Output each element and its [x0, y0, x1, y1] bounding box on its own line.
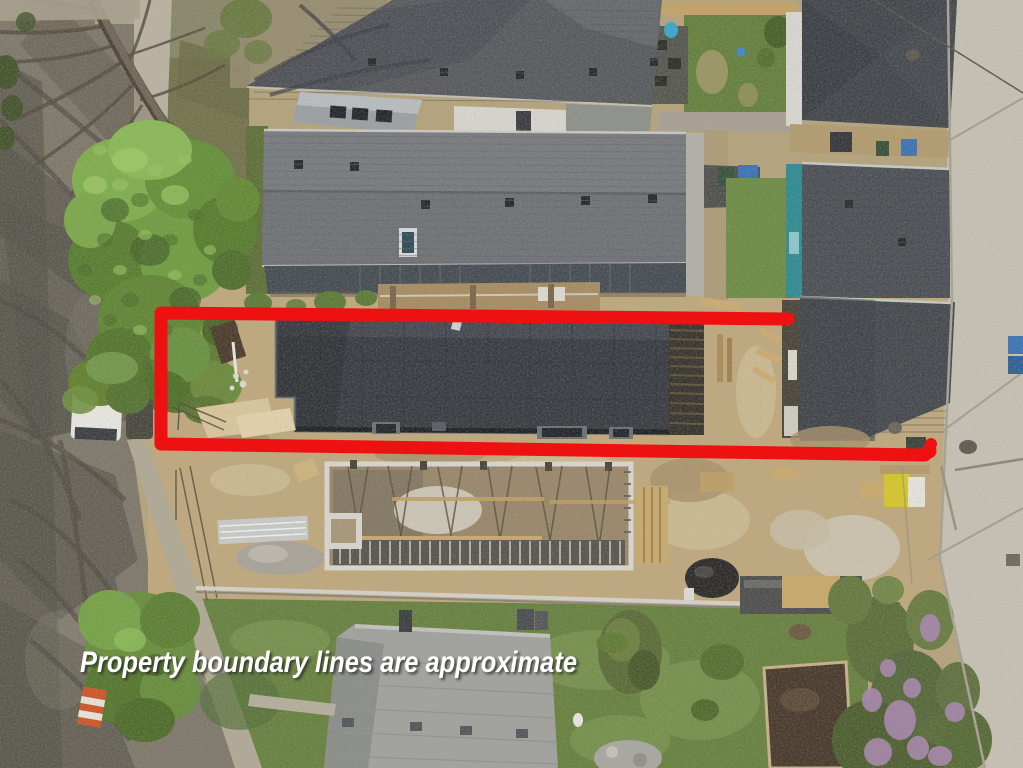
svg-text:Property boundary lines are ap: Property boundary lines are approximate: [80, 646, 577, 679]
